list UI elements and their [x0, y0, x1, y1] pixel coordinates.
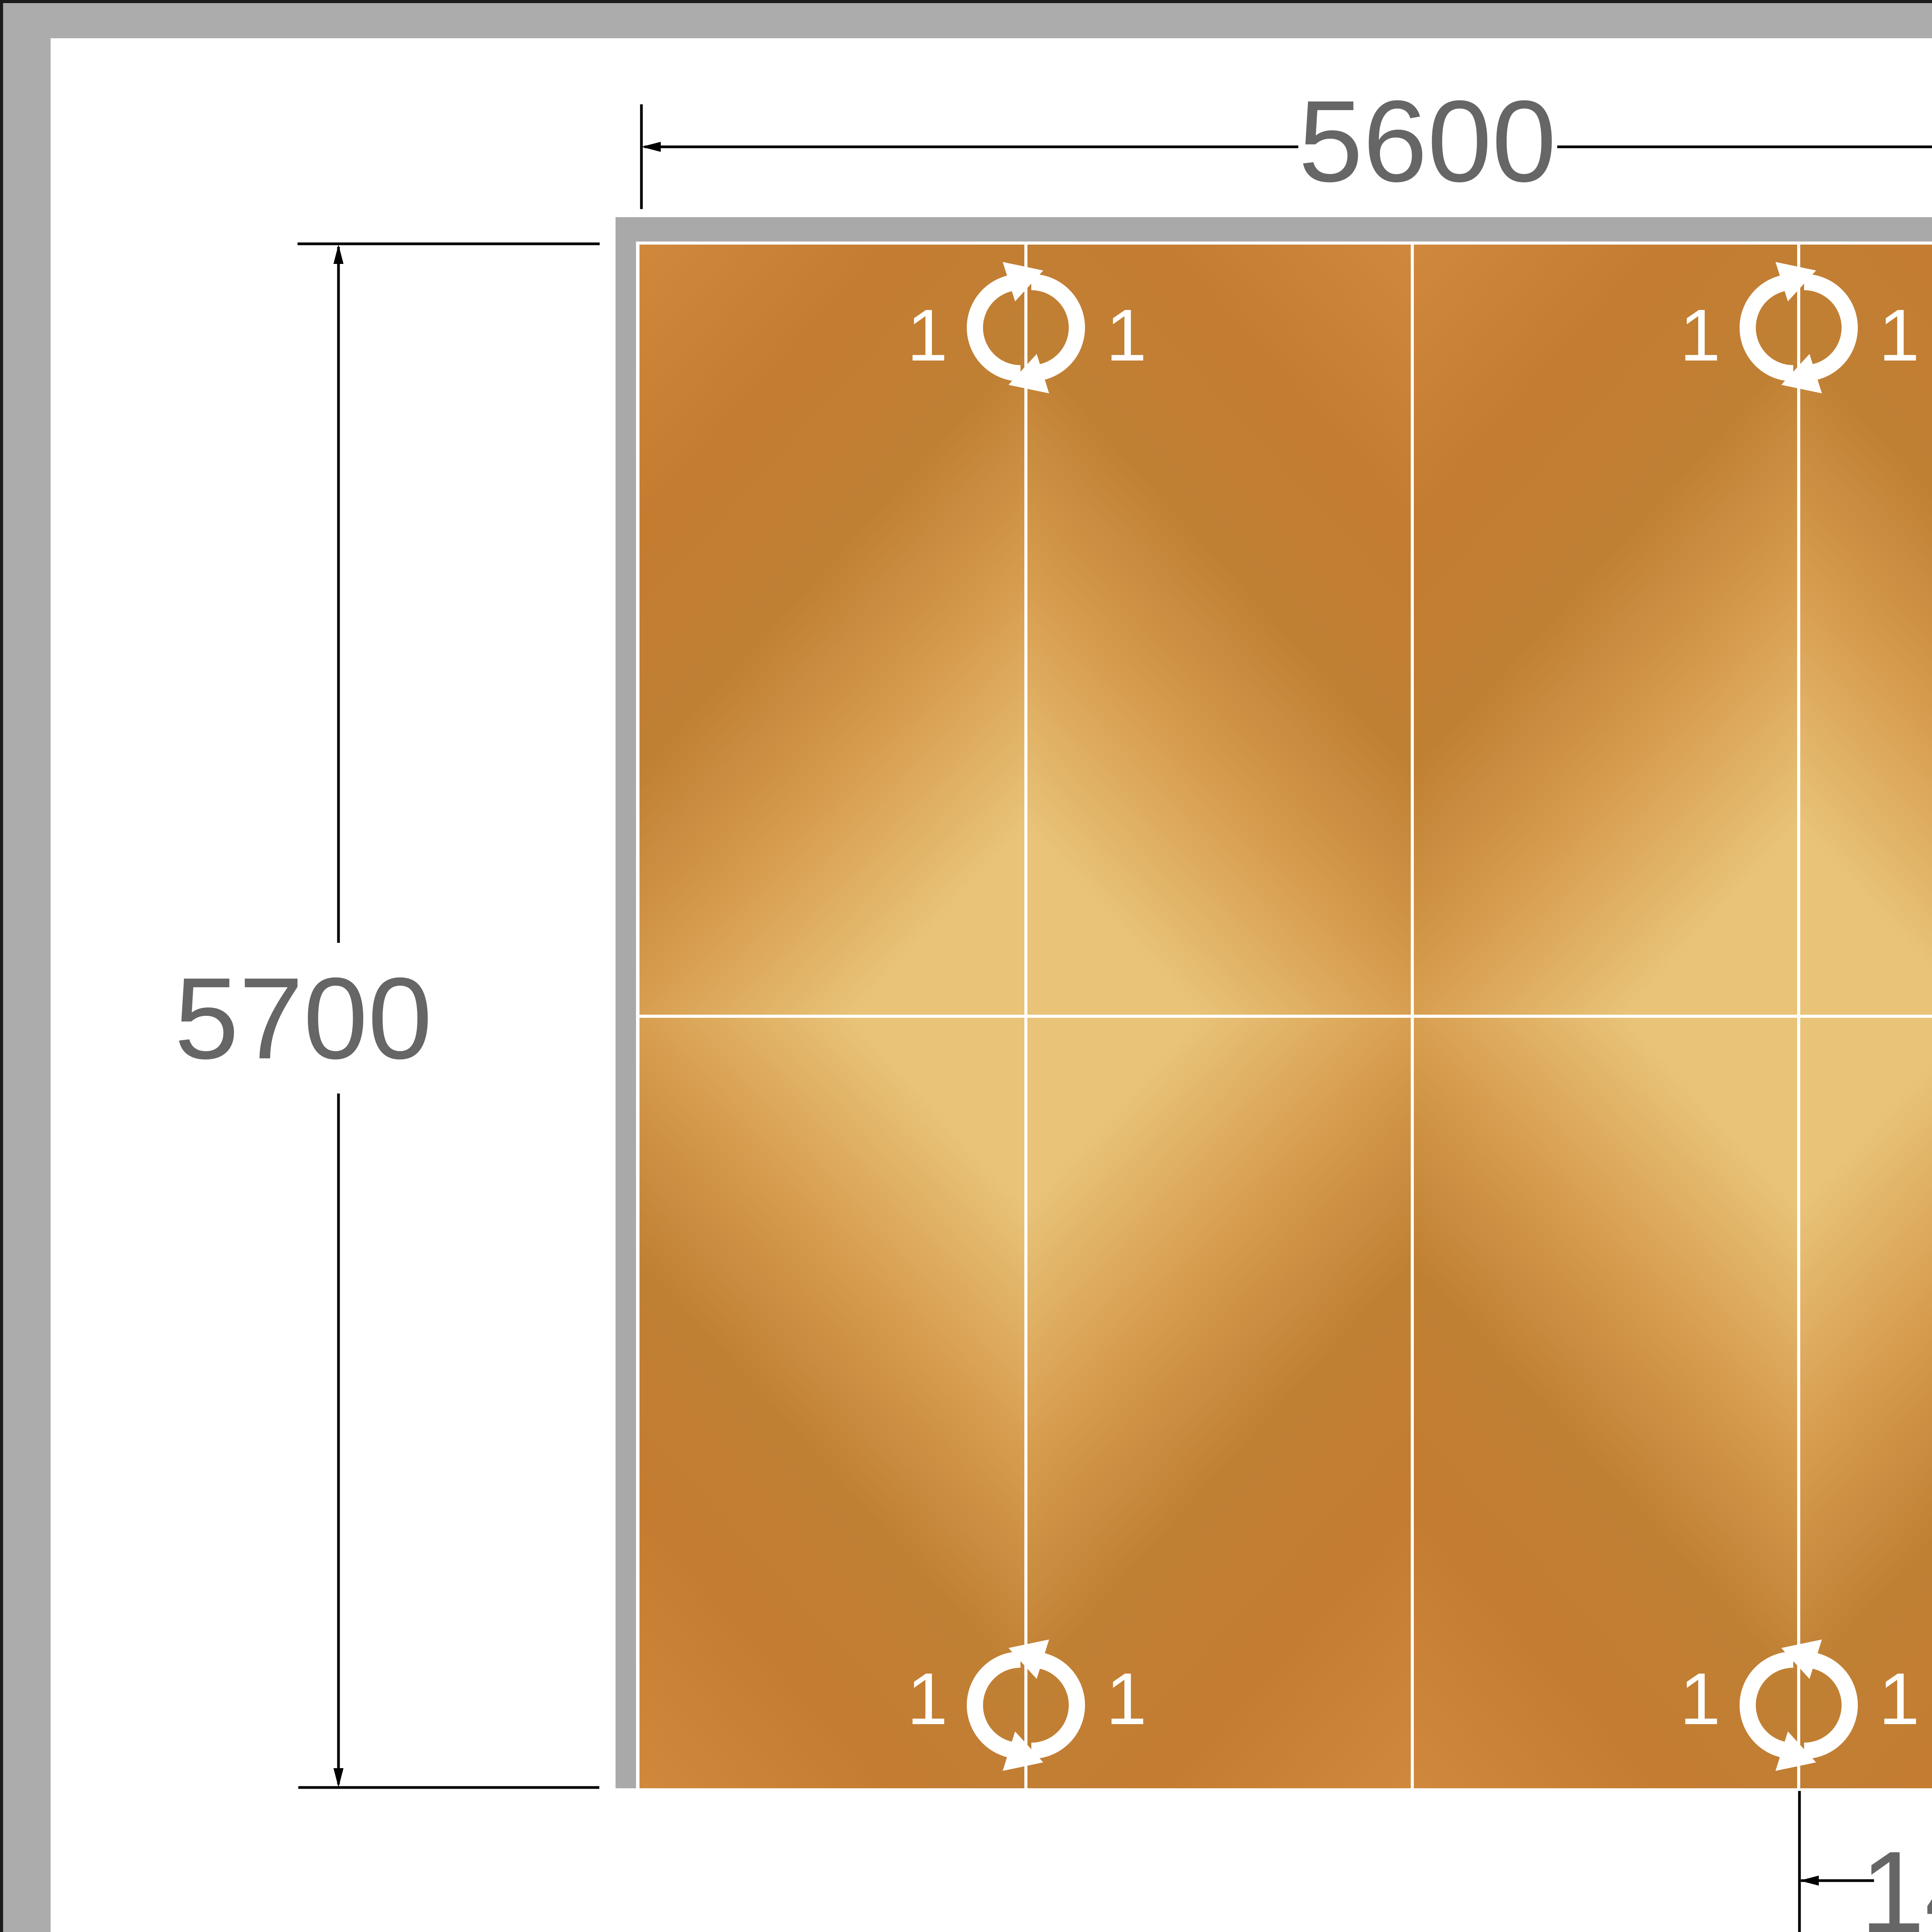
svg-text:1: 1: [1680, 294, 1721, 376]
svg-text:1: 1: [907, 1658, 948, 1740]
svg-text:5700: 5700: [174, 953, 432, 1083]
svg-text:1: 1: [1879, 294, 1920, 376]
svg-text:1400: 1400: [1860, 1827, 1932, 1932]
svg-text:1: 1: [1680, 1658, 1721, 1740]
svg-text:1: 1: [907, 294, 948, 376]
svg-text:1: 1: [1106, 1658, 1147, 1740]
svg-text:5600: 5600: [1298, 76, 1556, 206]
svg-text:1: 1: [1879, 1658, 1920, 1740]
svg-text:1: 1: [1106, 294, 1147, 376]
